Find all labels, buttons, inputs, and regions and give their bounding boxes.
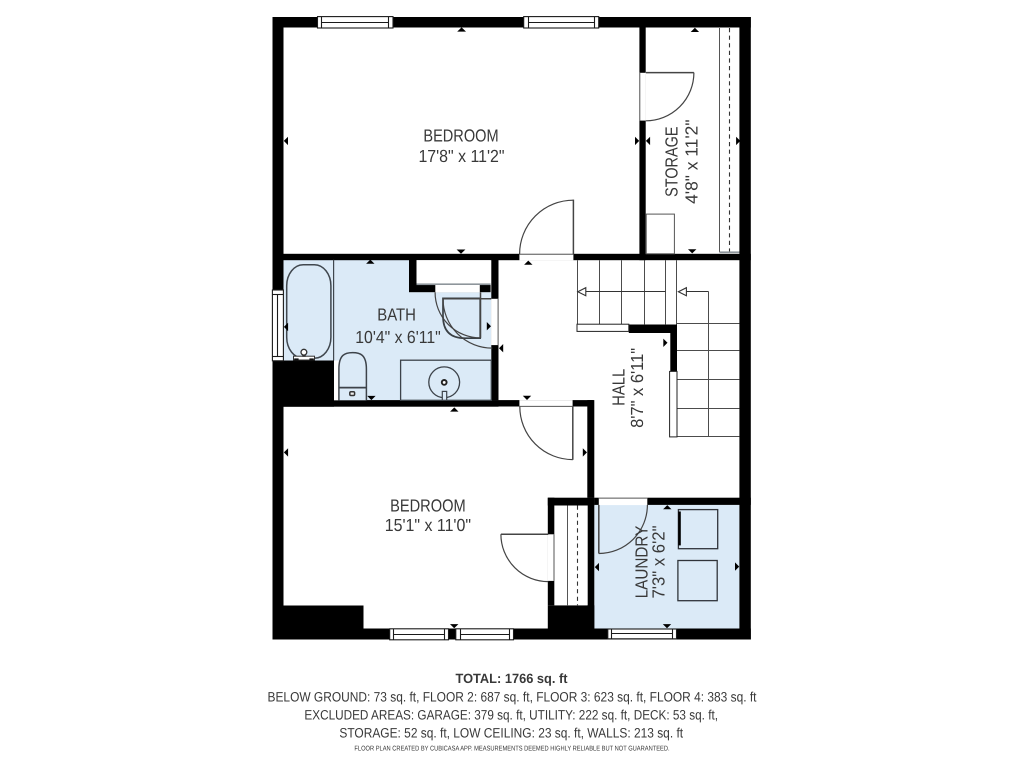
svg-text:BATH: BATH (377, 305, 416, 325)
svg-text:FLOOR PLAN CREATED BY CUBICASA: FLOOR PLAN CREATED BY CUBICASA APP. MEAS… (354, 745, 669, 752)
svg-text:8'7" x 6'11": 8'7" x 6'11" (627, 348, 647, 428)
svg-text:17'8" x 11'2": 17'8" x 11'2" (418, 146, 504, 166)
svg-text:BEDROOM: BEDROOM (390, 495, 466, 515)
svg-text:BELOW GROUND: 73 sq. ft, FLOOR: BELOW GROUND: 73 sq. ft, FLOOR 2: 687 sq… (268, 690, 757, 705)
svg-text:TOTAL: 1766 sq. ft: TOTAL: 1766 sq. ft (456, 671, 568, 686)
svg-text:BEDROOM: BEDROOM (423, 126, 498, 146)
svg-text:HALL: HALL (609, 369, 629, 406)
svg-text:STORAGE: 52 sq. ft, LOW CEILIN: STORAGE: 52 sq. ft, LOW CEILING: 23 sq. … (339, 725, 683, 740)
svg-text:STORAGE: STORAGE (662, 127, 682, 197)
svg-text:15'1" x 11'0": 15'1" x 11'0" (385, 515, 471, 535)
svg-text:4'8" x 11'2": 4'8" x 11'2" (681, 120, 701, 204)
svg-text:10'4" x 6'11": 10'4" x 6'11" (355, 327, 441, 347)
svg-text:7'3" x 6'2": 7'3" x 6'2" (648, 526, 668, 599)
svg-text:EXCLUDED AREAS: GARAGE: 379 sq: EXCLUDED AREAS: GARAGE: 379 sq. ft, UTIL… (304, 708, 718, 723)
